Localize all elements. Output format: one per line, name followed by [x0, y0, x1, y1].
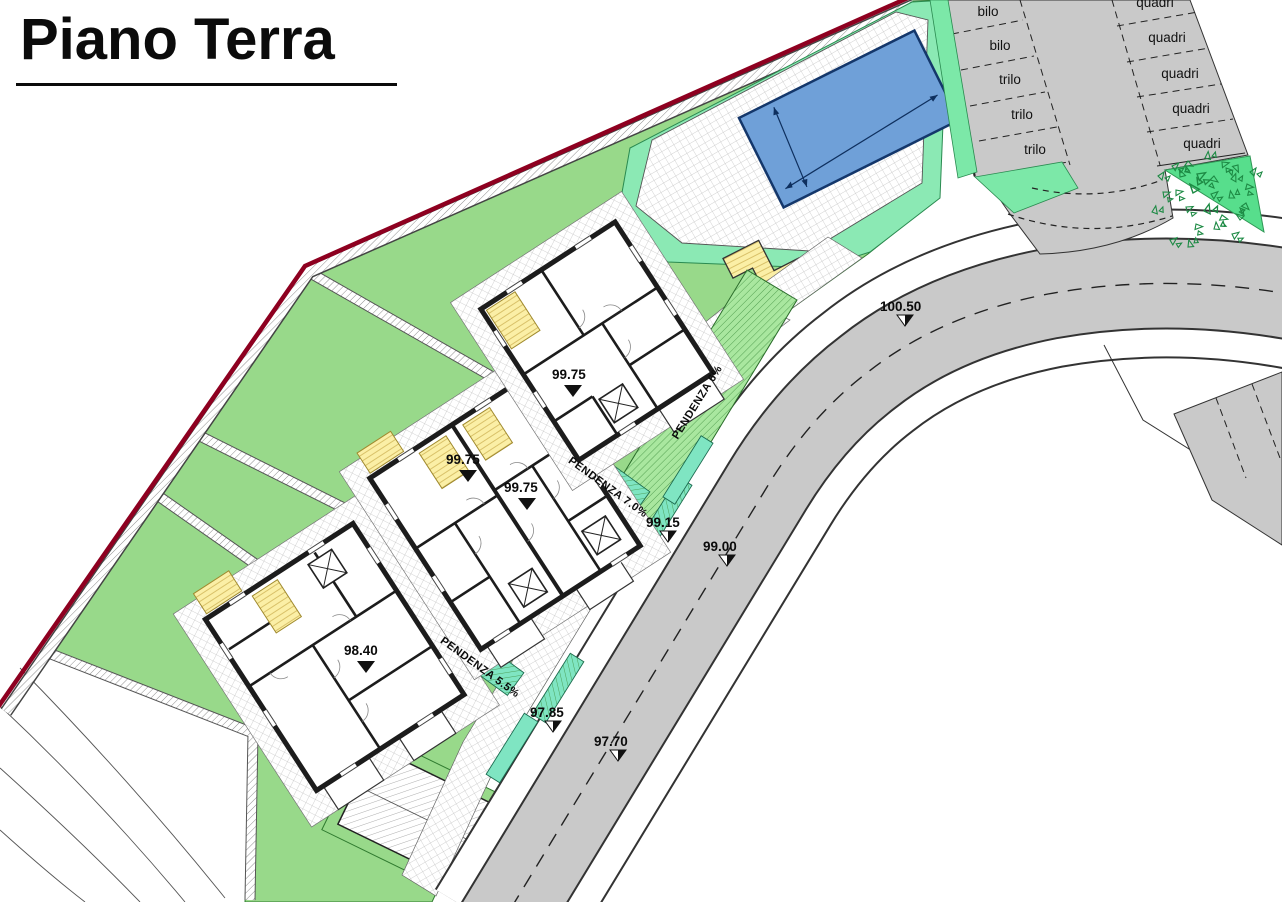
- stall-label: bilo: [989, 38, 1010, 53]
- stall-label: quadri: [1172, 101, 1210, 116]
- stall-label: quadri: [1183, 136, 1221, 151]
- site-plan-page: PENDENZA 6% PENDENZA 7.0% PENDENZA 5.5% …: [0, 0, 1282, 902]
- elevation-label: 98.40: [344, 643, 378, 658]
- elevation-label: 99.75: [504, 480, 538, 495]
- stall-label: trilo: [999, 72, 1021, 87]
- elevation-label: 97.70: [594, 734, 628, 749]
- parking-area-corner: [1104, 345, 1282, 545]
- elevation-label: 99.15: [646, 515, 680, 530]
- site-plan-drawing: PENDENZA 6% PENDENZA 7.0% PENDENZA 5.5% …: [0, 0, 1282, 902]
- page-title: Piano Terra: [16, 6, 397, 86]
- elevation-label: 99.75: [446, 452, 480, 467]
- stall-label: quadri: [1148, 30, 1186, 45]
- elevation-label: 97.85: [530, 705, 564, 720]
- stall-label: quadri: [1136, 0, 1174, 10]
- stall-label: trilo: [1024, 142, 1046, 157]
- elevation-label: 99.00: [703, 539, 737, 554]
- stall-label: trilo: [1011, 107, 1033, 122]
- stall-label: bilo: [977, 4, 998, 19]
- elevation-label: 100.50: [880, 299, 921, 314]
- stall-label: quadri: [1161, 66, 1199, 81]
- elevation-label: 99.75: [552, 367, 586, 382]
